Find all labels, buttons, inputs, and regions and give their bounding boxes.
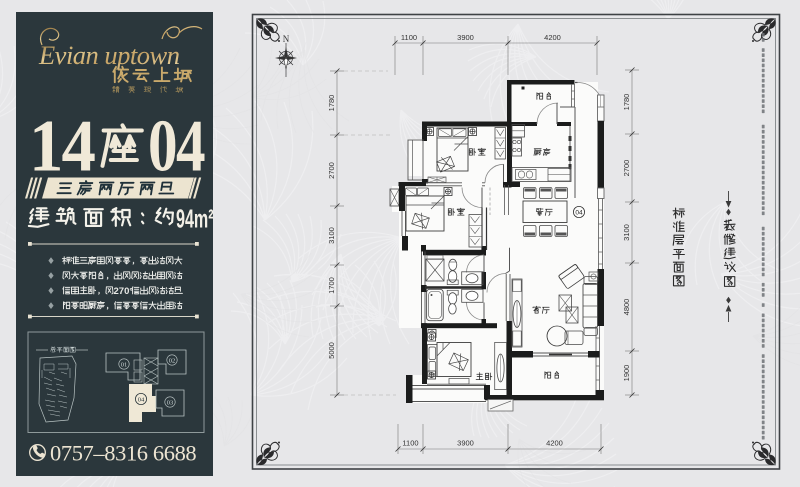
svg-text:N: N [283,34,290,44]
svg-text:3100: 3100 [327,227,336,244]
svg-text:04: 04 [138,397,145,404]
svg-text:4200: 4200 [544,33,561,42]
svg-text:3900: 3900 [457,33,474,42]
svg-text:2700: 2700 [622,160,631,177]
svg-text:4800: 4800 [622,299,631,316]
svg-text:2700: 2700 [327,162,336,179]
svg-text:01: 01 [121,362,128,369]
svg-text:270°: 270° [114,286,134,297]
svg-text:Evian uptown: Evian uptown [38,40,180,70]
svg-text:1100: 1100 [402,439,418,448]
svg-text:1780: 1780 [327,95,336,112]
svg-text:03: 03 [167,400,174,407]
svg-text:14: 14 [29,105,95,187]
svg-text:3100: 3100 [622,224,631,241]
svg-text:02: 02 [169,358,176,365]
svg-text:04: 04 [148,105,205,187]
svg-text:1780: 1780 [622,94,631,111]
svg-text:5000: 5000 [327,342,336,359]
svg-text:1700: 1700 [327,277,336,294]
svg-text:4200: 4200 [546,439,563,448]
svg-text:3900: 3900 [457,439,474,448]
svg-text:04: 04 [575,210,583,217]
svg-text:1900: 1900 [622,365,631,382]
svg-text:94m²: 94m² [176,203,213,233]
svg-text:1100: 1100 [401,33,417,42]
svg-text:0757–8316 6688: 0757–8316 6688 [50,441,196,466]
